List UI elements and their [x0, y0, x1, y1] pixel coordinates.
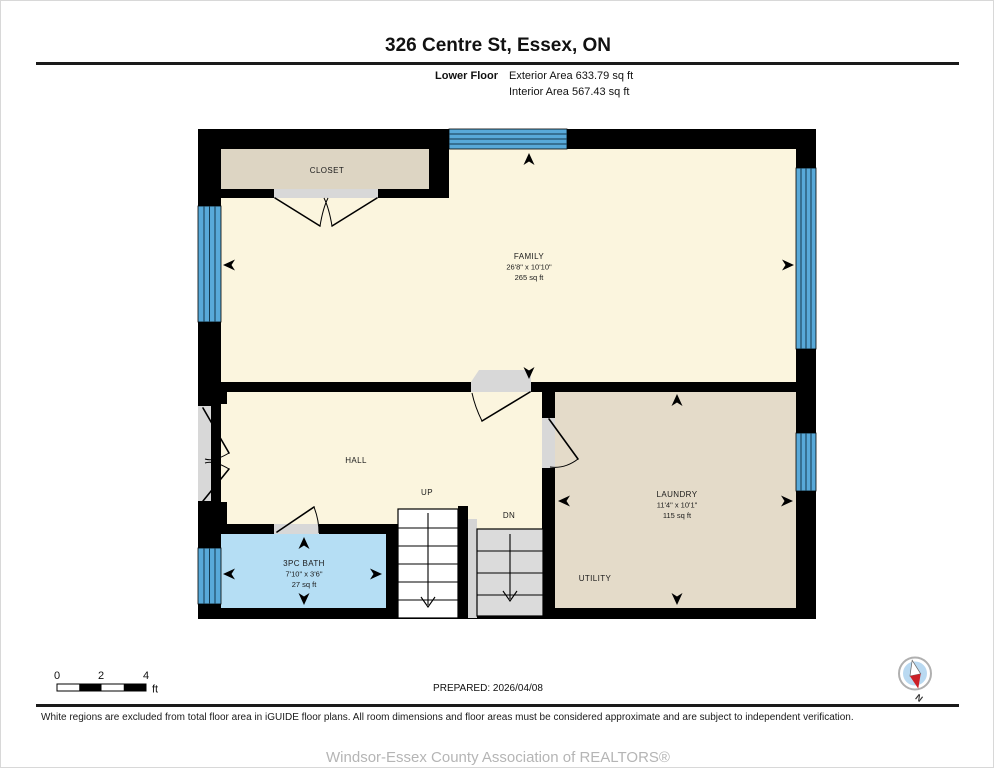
family-dims: 26'8" x 10'10" [506, 263, 552, 272]
scale-tick-0: 0 [54, 670, 60, 682]
window-family-top [449, 129, 567, 149]
window-family-right [796, 168, 816, 349]
scale-unit: ft [152, 684, 158, 696]
stairs-up [398, 506, 468, 619]
closet-door-opening [274, 189, 378, 198]
association-footer: Windsor-Essex County Association of REAL… [1, 749, 994, 766]
compass-icon: N [899, 658, 931, 704]
scale-tick-4: 4 [143, 670, 149, 682]
footer-rule [36, 704, 959, 707]
dn-label: DN [503, 511, 515, 520]
hall-label: HALL [345, 456, 367, 465]
prepared-label: PREPARED: 2026/04/08 [433, 683, 543, 694]
family-label: FAMILY [514, 252, 545, 261]
laundry-dims: 11'4" x 10'1" [657, 501, 698, 510]
scale-tick-2: 2 [98, 670, 104, 682]
floor-plan: CLOSET FAMILY 26'8" x 10'10" 265 sq ft H… [1, 1, 994, 768]
bath-label: 3PC BATH [283, 559, 325, 568]
window-laundry-right [796, 433, 816, 491]
stairs-down [477, 529, 543, 616]
bath-dims: 7'10" x 3'6" [286, 570, 323, 579]
floorplan-page: 326 Centre St, Essex, ON Lower Floor Ext… [0, 0, 994, 768]
scale-bar: 0 2 4 ft [54, 670, 158, 696]
bath-area: 27 sq ft [292, 580, 318, 589]
laundry-area: 115 sq ft [663, 511, 692, 520]
laundry-label: LAUNDRY [657, 490, 698, 499]
disclaimer-text: White regions are excluded from total fl… [41, 712, 961, 723]
closet-label: CLOSET [310, 166, 344, 175]
window-bath-left [198, 548, 221, 604]
window-family-left [198, 206, 221, 322]
utility-label: UTILITY [579, 574, 612, 583]
stair-divider [468, 519, 477, 618]
compass-north-label: N [913, 692, 924, 704]
up-label: UP [421, 488, 433, 497]
family-area: 265 sq ft [515, 273, 545, 282]
hall-door-opening [471, 382, 531, 392]
